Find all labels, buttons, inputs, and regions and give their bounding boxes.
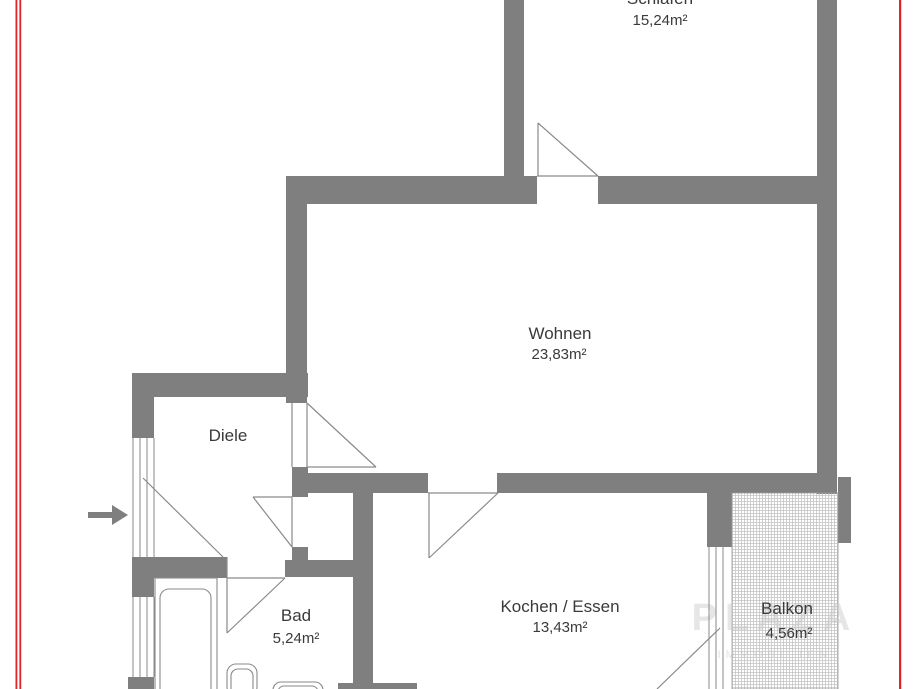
- room-label-bad: Bad: [281, 606, 311, 625]
- room-area-schlafen: 15,24m²: [632, 12, 687, 29]
- wall: [598, 176, 837, 204]
- wall: [292, 473, 428, 493]
- room-area-wohnen: 23,83m²: [531, 346, 586, 363]
- room-area-bad: 5,24m²: [273, 630, 320, 647]
- washbasin: [227, 664, 257, 689]
- page-border-left-inner: [19, 0, 21, 689]
- wall: [707, 493, 732, 547]
- toilet: [273, 682, 323, 689]
- door-swing-diele-wohnen: [292, 403, 376, 467]
- door-swing-diele-closet: [253, 497, 292, 547]
- door-swing-schlafen: [537, 123, 598, 176]
- floorplan-page: PLAZA IMMOBILIEN: [0, 0, 918, 689]
- window-bad: [133, 597, 154, 677]
- door-swing-wohnen-kochen: [428, 493, 498, 558]
- wall: [132, 373, 154, 438]
- entrance-arrow-icon: [88, 505, 128, 525]
- wall: [128, 677, 154, 689]
- wall: [353, 488, 373, 683]
- wall: [338, 683, 417, 689]
- window-entrance: [133, 438, 154, 557]
- wall: [504, 0, 524, 176]
- door-swing-balkon: [657, 628, 720, 689]
- room-label-kochen: Kochen / Essen: [500, 597, 619, 616]
- door-swing-entrance: [143, 478, 223, 557]
- watermark-small: IMMOBILIEN: [718, 649, 833, 661]
- room-label-wohnen: Wohnen: [528, 324, 591, 343]
- bathtub: [155, 578, 217, 689]
- wall: [286, 176, 307, 403]
- wall: [497, 473, 837, 493]
- wall: [132, 373, 308, 397]
- room-area-kochen: 13,43m²: [532, 619, 587, 636]
- room-label-diele: Diele: [209, 426, 248, 445]
- room-label-balkon: Balkon: [761, 599, 813, 618]
- wall: [817, 0, 837, 494]
- wall: [838, 477, 851, 543]
- page-border-left-outer: [16, 0, 18, 689]
- page-border-right: [899, 0, 901, 689]
- wall: [286, 176, 537, 204]
- room-area-balkon: 4,56m²: [766, 625, 813, 642]
- door-swing-bad: [227, 557, 285, 633]
- room-label-schlafen: Schlafen: [627, 0, 693, 8]
- floorplan-svg: PLAZA IMMOBILIEN: [0, 0, 918, 689]
- wall: [132, 557, 227, 578]
